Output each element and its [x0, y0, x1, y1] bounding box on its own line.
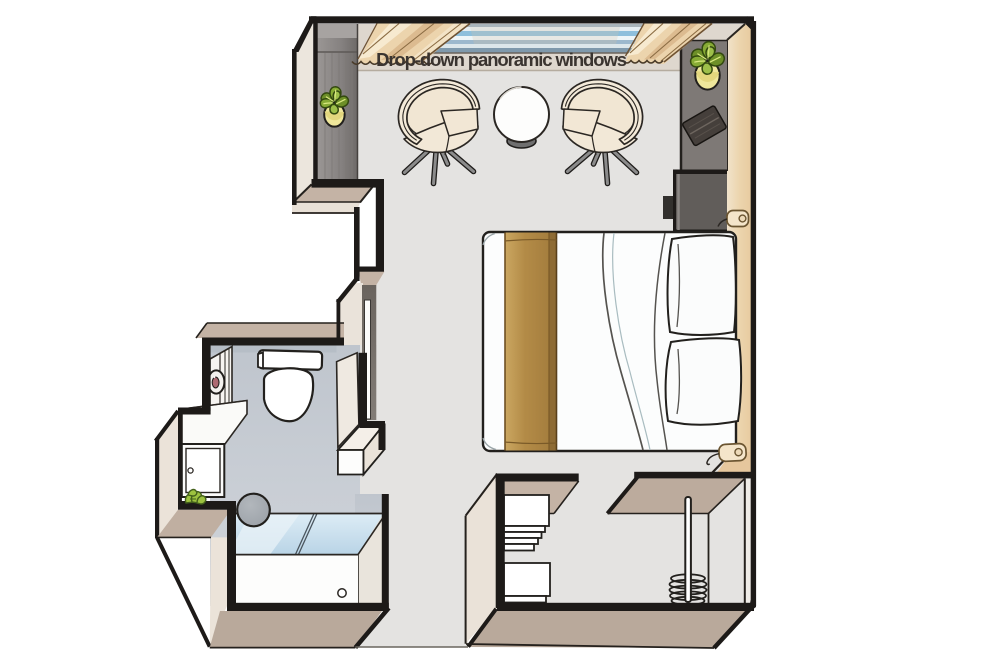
- svg-text:Drop-down panoramic windows: Drop-down panoramic windows: [376, 49, 627, 70]
